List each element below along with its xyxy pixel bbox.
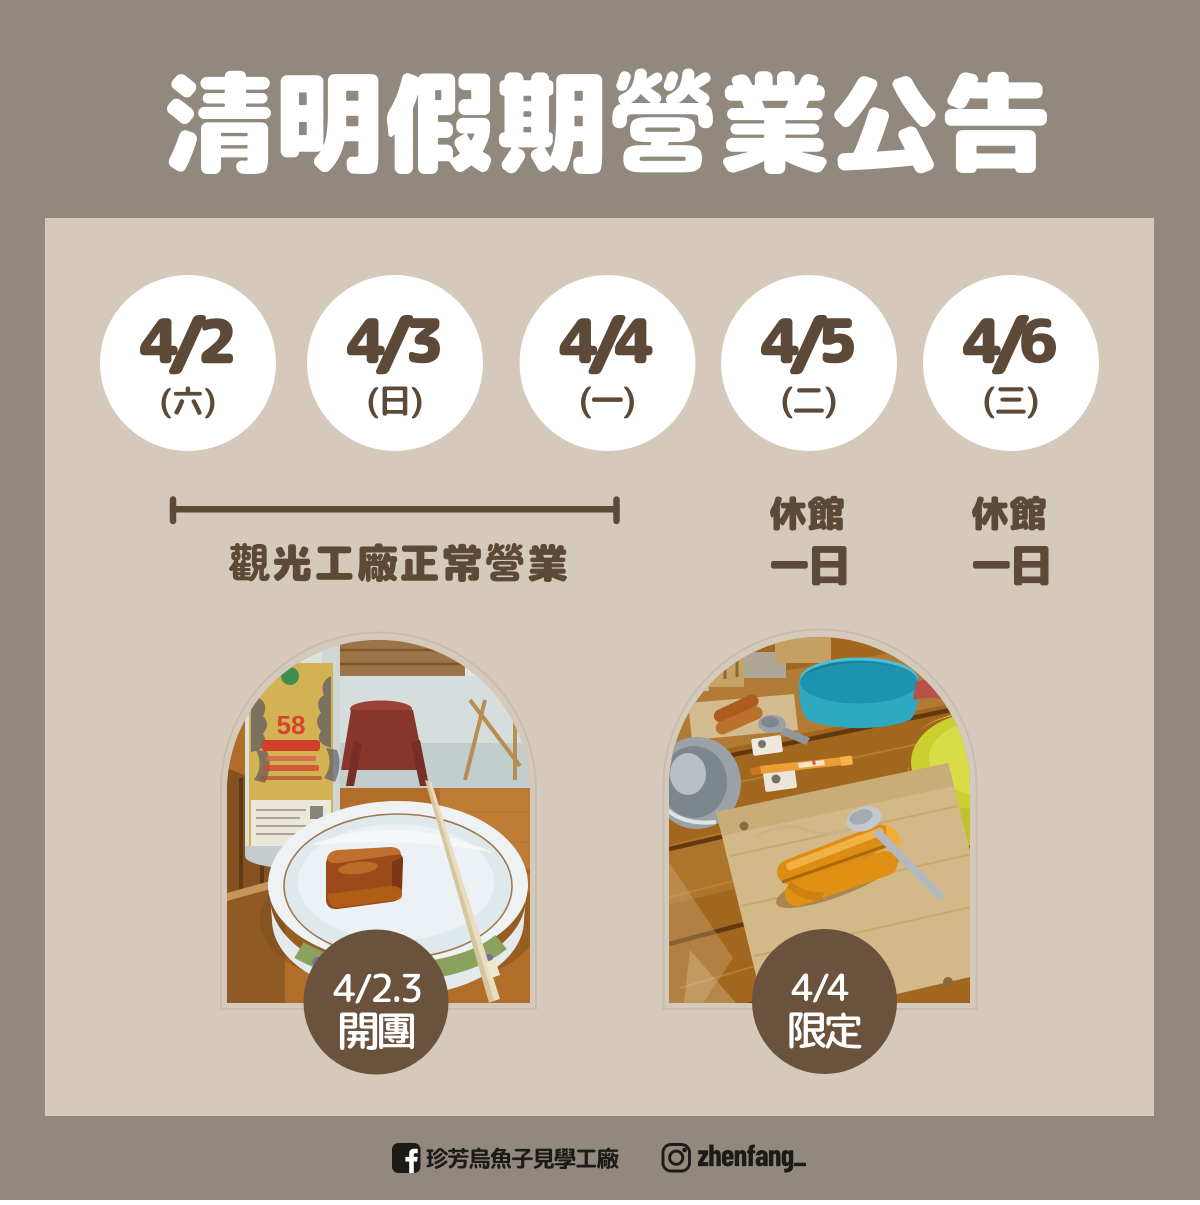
svg-text:58: 58: [277, 710, 306, 740]
